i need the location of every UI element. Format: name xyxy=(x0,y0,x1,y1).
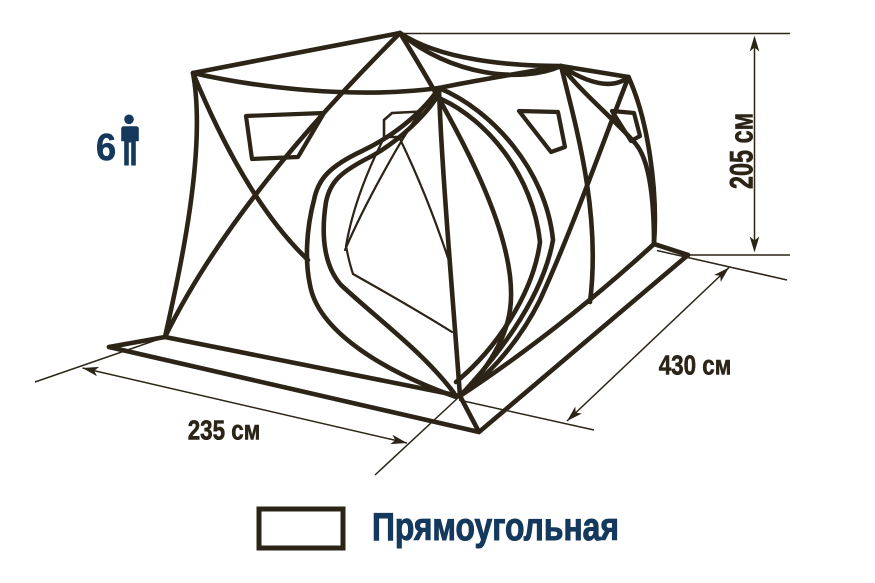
svg-text:235 см: 235 см xyxy=(188,415,261,446)
svg-text:430 см: 430 см xyxy=(659,350,732,381)
svg-text:Прямоугольная: Прямоугольная xyxy=(372,505,619,549)
svg-text:6: 6 xyxy=(96,125,116,168)
svg-text:205 см: 205 см xyxy=(724,113,759,189)
